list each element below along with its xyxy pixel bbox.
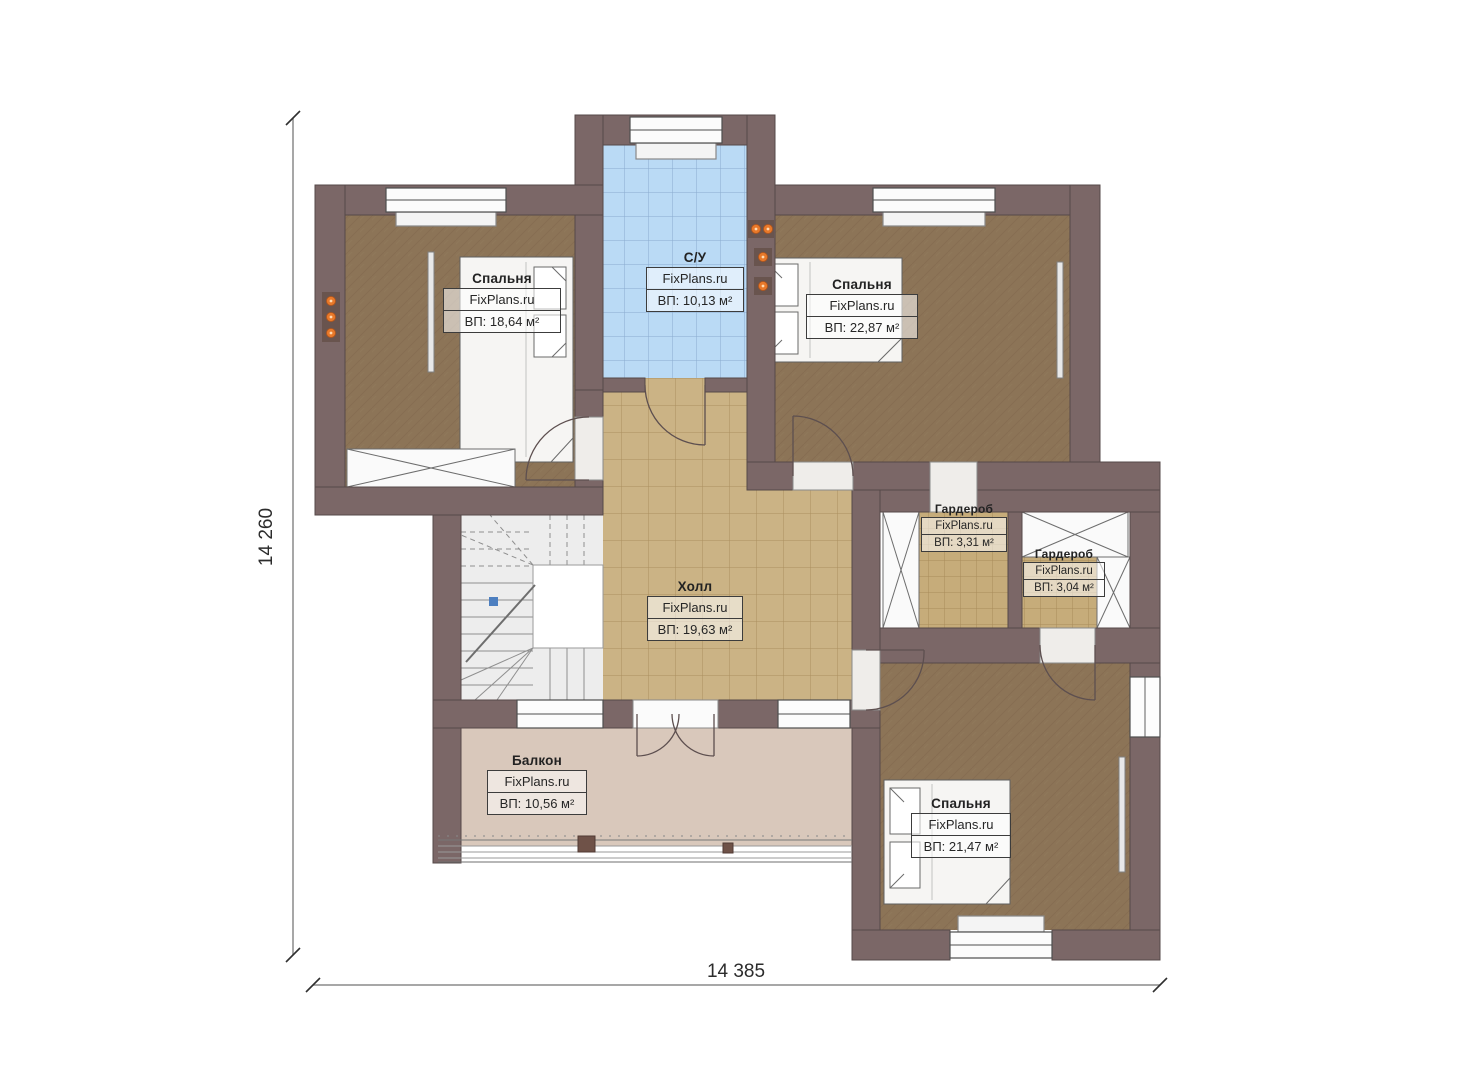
brand-watermark: FixPlans.ru [912, 814, 1010, 836]
room-name: Гардероб [1023, 547, 1105, 561]
brand-watermark: FixPlans.ru [1024, 563, 1104, 580]
room-area: ВП: 21,47 м² [912, 836, 1010, 857]
room-label-wardrobe-1: Гардероб FixPlans.ru ВП: 3,31 м² [921, 502, 1007, 552]
room-label-bathroom: С/У FixPlans.ru ВП: 10,13 м² [646, 250, 744, 312]
room-info-box: FixPlans.ru ВП: 21,47 м² [911, 813, 1011, 858]
dimension-horizontal-label: 14 385 [707, 961, 765, 982]
brand-watermark: FixPlans.ru [648, 597, 742, 619]
room-name: С/У [646, 250, 744, 265]
room-info-box: FixPlans.ru ВП: 10,13 м² [646, 267, 744, 312]
room-info-box: FixPlans.ru ВП: 22,87 м² [806, 294, 918, 339]
room-area: ВП: 18,64 м² [444, 311, 560, 332]
room-name: Балкон [487, 753, 587, 768]
room-area: ВП: 10,56 м² [488, 793, 586, 814]
balcony-railing [438, 836, 852, 862]
room-area: ВП: 3,04 м² [1024, 580, 1104, 596]
room-label-bedroom-2: Спальня FixPlans.ru ВП: 22,87 м² [806, 277, 918, 339]
room-label-bedroom-1: Спальня FixPlans.ru ВП: 18,64 м² [443, 271, 561, 333]
brand-watermark: FixPlans.ru [647, 268, 743, 290]
brand-watermark: FixPlans.ru [444, 289, 560, 311]
room-info-box: FixPlans.ru ВП: 18,64 м² [443, 288, 561, 333]
room-info-box: FixPlans.ru ВП: 3,31 м² [921, 517, 1007, 552]
brand-watermark: FixPlans.ru [488, 771, 586, 793]
room-area: ВП: 22,87 м² [807, 317, 917, 338]
room-info-box: FixPlans.ru ВП: 10,56 м² [487, 770, 587, 815]
room-area: ВП: 10,13 м² [647, 290, 743, 311]
room-name: Гардероб [921, 502, 1007, 516]
brand-watermark: FixPlans.ru [807, 295, 917, 317]
room-label-bedroom-3: Спальня FixPlans.ru ВП: 21,47 м² [911, 796, 1011, 858]
floor-plan-page: 14 260 14 385 Спальня FixPlans.ru ВП: 18… [0, 0, 1474, 1080]
room-label-wardrobe-2: Гардероб FixPlans.ru ВП: 3,04 м² [1023, 547, 1105, 597]
room-info-box: FixPlans.ru ВП: 19,63 м² [647, 596, 743, 641]
room-name: Спальня [443, 271, 561, 286]
room-info-box: FixPlans.ru ВП: 3,04 м² [1023, 562, 1105, 597]
room-name: Холл [647, 579, 743, 594]
room-label-balcony: Балкон FixPlans.ru ВП: 10,56 м² [487, 753, 587, 815]
floor-plan-svg: 14 260 14 385 [0, 0, 1474, 1080]
dimension-horizontal: 14 385 [306, 961, 1167, 992]
room-label-hall: Холл FixPlans.ru ВП: 19,63 м² [647, 579, 743, 641]
room-area: ВП: 19,63 м² [648, 619, 742, 640]
brand-watermark: FixPlans.ru [922, 518, 1006, 535]
room-name: Спальня [806, 277, 918, 292]
room-name: Спальня [911, 796, 1011, 811]
room-area: ВП: 3,31 м² [922, 535, 1006, 551]
dimension-vertical: 14 260 [256, 111, 300, 962]
dimension-vertical-label: 14 260 [256, 508, 277, 566]
